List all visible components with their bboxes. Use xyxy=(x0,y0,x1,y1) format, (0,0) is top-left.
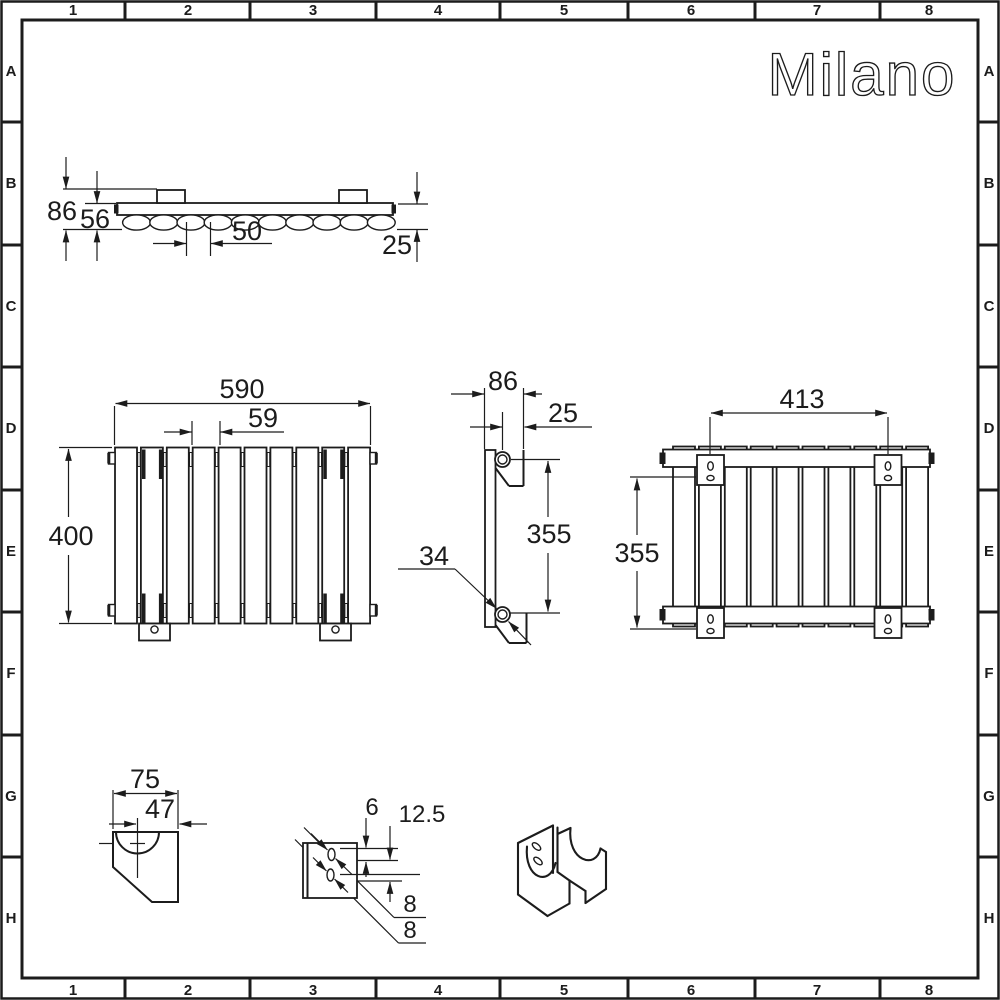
grid-col-label: 1 xyxy=(69,982,77,999)
grid-col-label: 7 xyxy=(813,982,821,999)
technical-drawing-sheet: 1 2 3 4 5 6 7 8 1 2 3 4 5 6 7 8 A B C D … xyxy=(0,0,1000,1000)
dim-side-pipe-offset: 25 xyxy=(548,398,578,428)
grid-row-label: F xyxy=(6,665,15,682)
grid-row-label: D xyxy=(984,420,995,437)
grid-row-label: G xyxy=(983,788,995,805)
dim-top-panel-depth: 56 xyxy=(80,204,110,234)
bracket-3d-slot xyxy=(532,856,543,866)
grid-row-label: B xyxy=(6,175,17,192)
dim-side-bracket-span: 355 xyxy=(526,519,571,549)
rear-view: 413 355 xyxy=(614,384,934,638)
grid-col-label: 2 xyxy=(184,982,192,999)
top-view-bracket-tab xyxy=(157,190,185,203)
grid-col-label: 3 xyxy=(309,982,317,999)
top-view: 86 56 50 25 xyxy=(47,157,428,262)
dim-front-width: 590 xyxy=(219,374,264,404)
grid-row-label: C xyxy=(6,298,17,315)
dim-bracket-width: 75 xyxy=(130,764,160,794)
bracket-3d-view xyxy=(518,826,606,917)
bracket-3d-slot xyxy=(531,841,542,851)
dim-front-height: 400 xyxy=(48,521,93,551)
dim-rear-bracket-spacing-h: 413 xyxy=(779,384,824,414)
brand-logo: Milano xyxy=(768,41,957,108)
bracket-slot xyxy=(327,869,334,881)
grid-row-label: E xyxy=(984,543,994,560)
dim-side-pipe-diameter: 34 xyxy=(419,541,449,571)
bracket-face-detail: 75 47 xyxy=(99,764,207,902)
grid-row-label: A xyxy=(6,63,17,80)
bracket-face-dimensions: 75 47 xyxy=(109,764,207,829)
top-view-header-bar xyxy=(117,203,393,215)
grid-col-label: 6 xyxy=(687,2,695,19)
grid-col-label: 3 xyxy=(309,2,317,19)
grid-col-label: 7 xyxy=(813,2,821,19)
grid-row-label: G xyxy=(5,788,17,805)
grid-col-label: 2 xyxy=(184,2,192,19)
grid-col-label: 5 xyxy=(560,2,568,19)
grid-row-label: A xyxy=(984,63,995,80)
top-view-bracket-tab xyxy=(339,190,367,203)
dim-bracket-hole-offset: 47 xyxy=(145,794,175,824)
bracket-face-outline xyxy=(113,832,178,902)
drawing-canvas: 1 2 3 4 5 6 7 8 1 2 3 4 5 6 7 8 A B C D … xyxy=(0,0,1000,1000)
front-view-panels xyxy=(115,448,370,624)
dim-slot-length-a: 8 xyxy=(403,891,416,918)
dim-side-depth: 86 xyxy=(488,366,518,396)
grid-col-label: 4 xyxy=(434,982,443,999)
bracket-slot xyxy=(328,849,335,861)
dim-top-overall-depth: 86 xyxy=(47,196,77,226)
grid-col-label: 8 xyxy=(925,2,933,19)
bracket-profile-detail: 6 12.5 8 8 xyxy=(295,794,445,944)
front-view: 590 59 400 xyxy=(48,374,377,641)
grid-col-label: 6 xyxy=(687,982,695,999)
grid-row-label: E xyxy=(6,543,16,560)
dim-slot-pitch: 12.5 xyxy=(399,801,446,828)
dim-slot-length-b: 8 xyxy=(403,917,416,944)
dim-slot-width: 6 xyxy=(365,794,378,821)
dim-top-wall-gap: 25 xyxy=(382,230,412,260)
grid-col-label: 5 xyxy=(560,982,568,999)
dim-rear-bracket-spacing-v: 355 xyxy=(614,538,659,568)
grid-row-label: C xyxy=(984,298,995,315)
dim-front-panel-pitch: 59 xyxy=(248,403,278,433)
dim-top-column-pitch: 50 xyxy=(232,216,262,246)
side-view: 86 25 355 34 xyxy=(398,366,592,645)
grid-row-label: F xyxy=(984,665,993,682)
grid-col-label: 1 xyxy=(69,2,77,19)
front-view-feet xyxy=(139,624,351,641)
grid-row-label: H xyxy=(6,910,17,927)
grid-col-label: 4 xyxy=(434,2,443,19)
grid-row-label: D xyxy=(6,420,17,437)
grid-col-label: 8 xyxy=(925,982,933,999)
side-view-panel xyxy=(485,450,496,627)
grid-row-label: H xyxy=(984,910,995,927)
grid-row-label: B xyxy=(984,175,995,192)
